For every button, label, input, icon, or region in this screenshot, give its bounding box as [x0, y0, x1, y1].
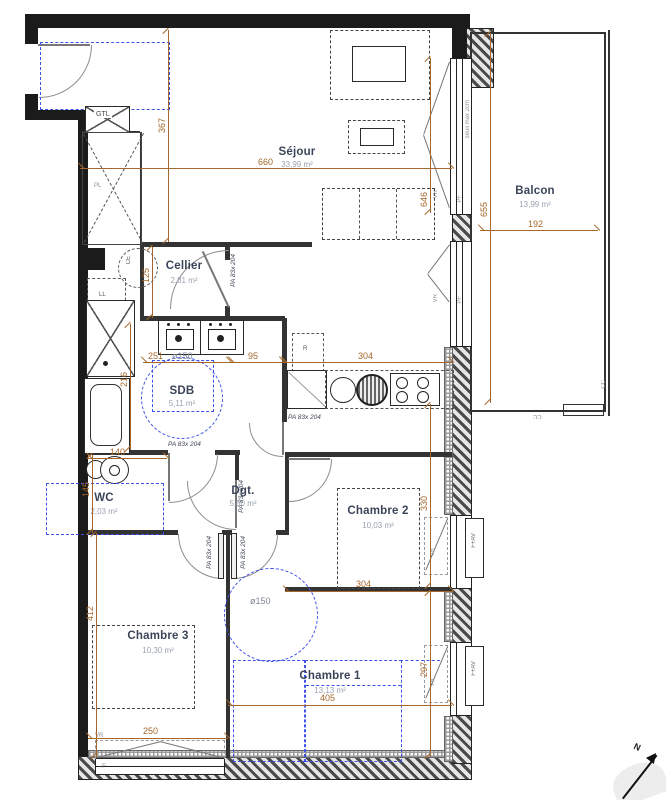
window-leaf-line: [428, 244, 450, 273]
dim-chambre3-height: 412: [85, 606, 95, 621]
room-name-sdb: SDB: [170, 385, 195, 397]
bathtub: [84, 378, 130, 454]
room-area-sdb: 5,11 m²: [169, 399, 196, 408]
sink-drain: [217, 335, 224, 342]
faucet-dot: [187, 323, 190, 326]
chambre1-wardrobe-zone: [233, 660, 305, 762]
sdb-turning-circle: [141, 357, 223, 439]
dining-table: [352, 46, 406, 82]
sofa-divider: [359, 189, 361, 239]
dim-entry-height: 367: [157, 118, 167, 133]
burner: [396, 377, 408, 389]
dim-sdb-width: 251: [148, 351, 163, 361]
dim-chambre3-width: 250: [143, 726, 158, 736]
dim-line-chambre1-width: [228, 705, 452, 706]
wall-dgt-chambre2: [285, 455, 289, 532]
window-mullion: [456, 516, 457, 588]
dim-line-balcon-height: [490, 33, 491, 403]
balcony-outer-line: [608, 30, 610, 416]
wall-right-insulation3: [444, 716, 453, 762]
room-name-sejour: Séjour: [279, 146, 316, 158]
room-name-dgt: Dgt.: [231, 485, 254, 497]
sink-drain: [175, 335, 182, 342]
dim-balcon-height: 655: [479, 202, 489, 217]
window-fav-label: F+AV: [471, 661, 477, 676]
fridge-label: R: [303, 346, 307, 352]
dim-line-wc-height: [92, 455, 93, 533]
wall-right-seg4: [452, 587, 472, 644]
cabinet-block: [85, 248, 105, 270]
toilet-bowl: [100, 456, 129, 484]
sdb-door-leaf: [168, 453, 170, 501]
kitchen-sink-drainer: [356, 374, 388, 406]
dim-line-sdb-width: [143, 362, 230, 363]
chambre3-door-label: PA 83x 204: [206, 536, 213, 569]
entry-closet-outline: [40, 42, 170, 110]
sdb-door-label: PA 83x 204: [168, 441, 201, 448]
dim-sdb-pass: 95: [248, 351, 258, 361]
faucet-dot: [167, 323, 170, 326]
window-pf-label: PF: [457, 296, 463, 304]
chambre1-turning-circle: [224, 568, 318, 662]
room-area-chambre2: 10,03 m²: [362, 521, 394, 530]
faucet-dot: [229, 323, 232, 326]
window-fav-label: F+AV: [471, 533, 477, 548]
bathtub-inner: [90, 384, 122, 446]
dim-wc-width: 140: [110, 447, 125, 457]
dim-line-balcon-width: [480, 230, 598, 231]
fridge-outline: [292, 333, 324, 372]
kitchen-door-label: PA 83x 204: [288, 414, 321, 421]
chambre3-door-leaf: [218, 533, 224, 579]
wall-left-jog: [25, 110, 85, 120]
dim-cellier-height: 125: [141, 268, 151, 283]
window-fav-box: F+AV: [465, 646, 484, 706]
dim-line-sejour-window: [430, 58, 431, 213]
dim-chambre2-width: 304: [356, 579, 371, 589]
kitchen-cabinet: [287, 370, 327, 409]
window-mullion: [462, 242, 463, 346]
wall-right-insulation2: [444, 589, 453, 642]
dim-line-chambre3-height: [96, 533, 97, 757]
pl-label: PL: [93, 183, 102, 189]
faucet-dot: [219, 323, 222, 326]
window-mullion: [96, 766, 224, 767]
chambre1-door-leaf: [231, 533, 237, 579]
wall-top: [25, 14, 470, 28]
room-name-chambre1: Chambre 1: [299, 670, 360, 682]
dim-line-sdb-pass: [230, 362, 283, 363]
dim-line-cellier-height: [152, 247, 153, 318]
room-name-chambre2: Chambre 2: [347, 505, 408, 517]
dim-sejour-window: 646: [419, 192, 429, 207]
window-leaf-swing: [95, 740, 225, 759]
balcony-step: [563, 404, 604, 416]
burner: [417, 377, 429, 389]
vanity-sink-right: [200, 320, 244, 355]
vanity-sink-left: [158, 320, 202, 355]
window-mullion: [462, 59, 463, 214]
cooktop: [390, 373, 440, 406]
dim-line-entry-height: [168, 30, 169, 242]
window-f-label: F: [102, 764, 106, 770]
burner: [417, 391, 429, 403]
north-label: N: [632, 741, 642, 753]
dim-sdb-circle: ø150: [172, 351, 193, 361]
coffee-table: [360, 128, 394, 146]
chambre1-door-label: PA 83x 204: [240, 536, 247, 569]
room-name-cellier: Cellier: [166, 260, 203, 272]
shower-tray: [86, 300, 135, 377]
window-mullion: [456, 643, 457, 715]
room-area-wc: 2,03 m²: [90, 507, 117, 516]
floor-plan: CC CC VR PF VR PF seuil max 2cm F+AV VR …: [0, 0, 666, 800]
ll-label: LL: [99, 292, 106, 298]
cellier-door-label: PA 83x 204: [230, 254, 237, 287]
wall-left-top: [25, 14, 38, 44]
dim-chambre1-height: 297: [419, 662, 429, 677]
dim-chambre1-width: 405: [320, 693, 335, 703]
wall-chambre3-right: [226, 530, 230, 758]
kitchen-door-leaf: [282, 422, 284, 455]
room-name-wc: WC: [94, 492, 114, 504]
threshold-note: seuil max 2cm: [465, 100, 471, 138]
dim-sdb-height: 216: [119, 372, 129, 387]
wall-right-seg5: [452, 714, 472, 764]
chambre2-door-leaf: [288, 458, 330, 460]
window-vr-label: VR: [433, 294, 439, 302]
dim-balcon-width: 192: [528, 219, 543, 229]
dim-line-sdb-height: [130, 324, 131, 450]
window-sejour-2: [450, 241, 472, 347]
dim-dgt-circle: ø150: [250, 596, 271, 606]
room-area-cellier: 2,81 m²: [170, 276, 197, 285]
faucet-dot: [209, 323, 212, 326]
window-fav-box: F+AV: [465, 518, 484, 578]
cabinet-diagonal: [288, 372, 325, 407]
window-pf-label: PF: [457, 195, 463, 203]
toilet-seat: [109, 465, 120, 476]
window-chambre3: [95, 758, 225, 775]
room-name-chambre3: Chambre 3: [127, 630, 188, 642]
room-area-chambre3: 10,30 m²: [142, 646, 174, 655]
dim-sejour-width: 660: [258, 157, 273, 167]
balcony-cc-label-right: CC: [601, 380, 607, 389]
window-mullion: [456, 59, 457, 214]
balcony-cc-label-bottom: CC: [533, 413, 542, 419]
dim-kitchen-width: 304: [358, 351, 373, 361]
kitchen-sink-bowl: [330, 377, 356, 403]
dim-line-chambre1-height: [430, 592, 431, 757]
wall-right-seg2: [452, 213, 472, 243]
chambre2-bed-zone: [337, 488, 420, 589]
dim-line-sejour-width: [80, 168, 452, 169]
room-area-balcon: 13,99 m²: [519, 200, 551, 209]
gtl-label: GTL: [94, 111, 112, 118]
faucet-dot: [177, 323, 180, 326]
room-area-dgt: 5,50 m²: [229, 499, 256, 508]
dim-line-wc-width: [88, 458, 167, 459]
dim-line-chambre3-width: [88, 738, 228, 739]
ce-label: CE: [126, 256, 132, 264]
shower-drain: [103, 361, 108, 366]
wall-right-seg3: [452, 345, 472, 517]
dim-line-kitchen-width: [283, 362, 452, 363]
dim-line-chambre2-height: [430, 404, 431, 587]
dim-chambre2-height: 330: [419, 496, 429, 511]
sofa-divider: [396, 189, 398, 239]
wall-wc-right-a: [235, 455, 239, 480]
room-name-balcon: Balcon: [515, 185, 555, 197]
dim-wc-height: 145: [81, 482, 91, 497]
wall-chambre2-top: [285, 452, 452, 457]
burner: [396, 391, 408, 403]
window-mullion: [456, 242, 457, 346]
